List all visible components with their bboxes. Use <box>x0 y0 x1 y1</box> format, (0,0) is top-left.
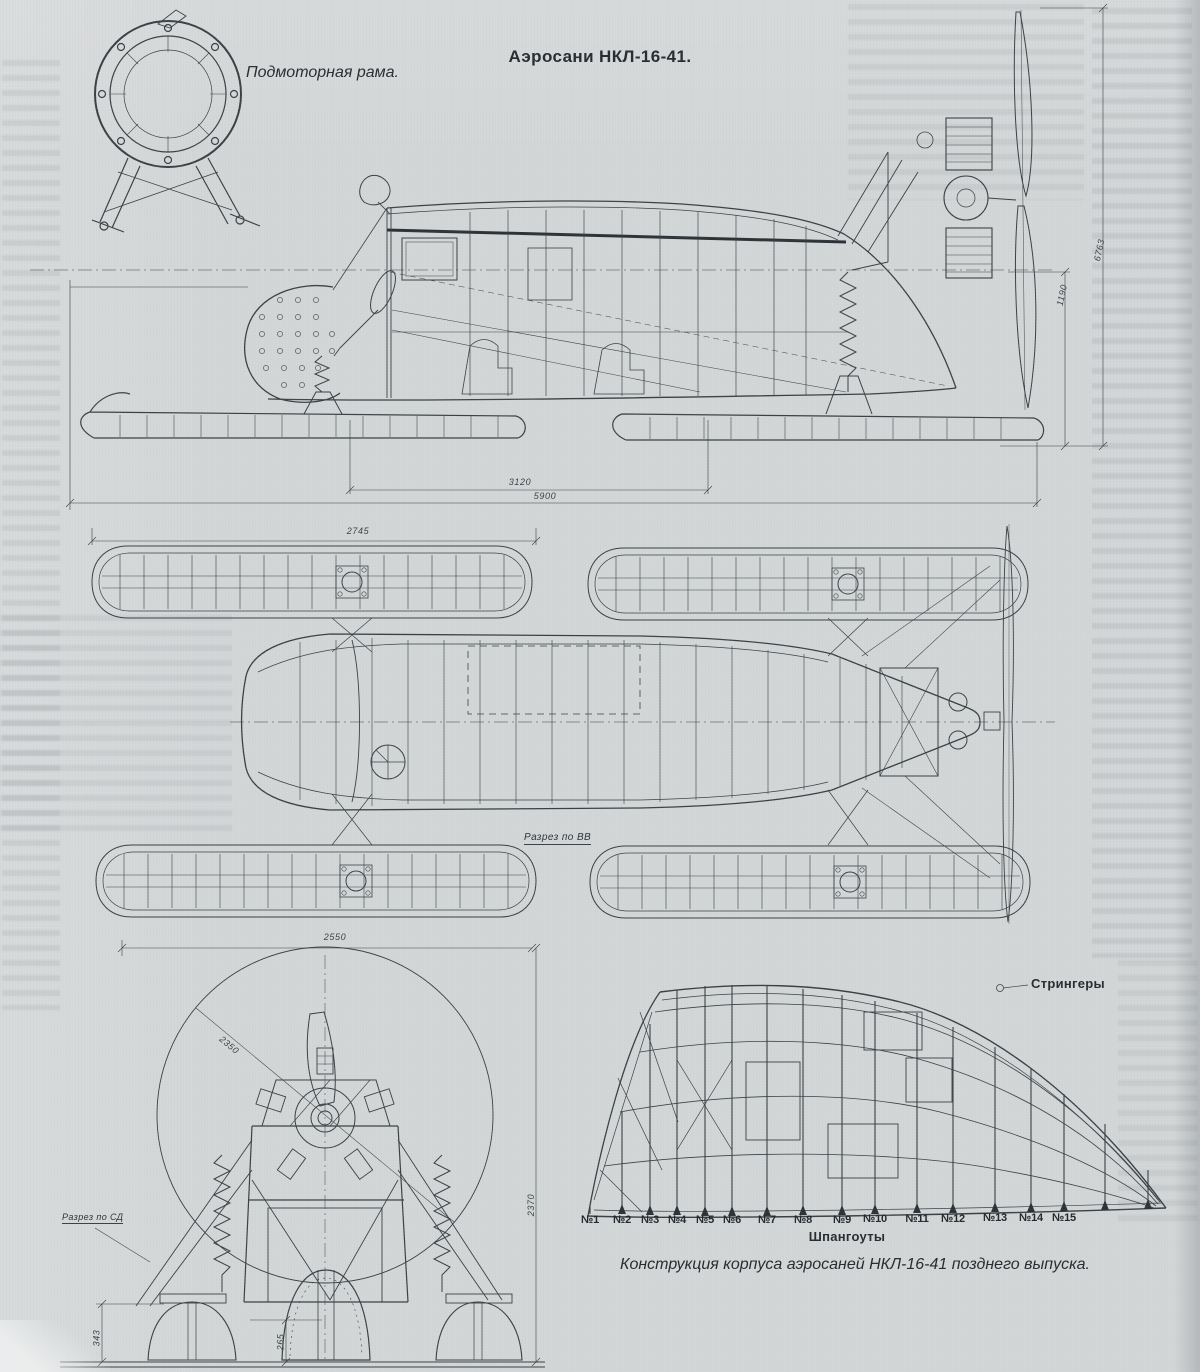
front-view-drawing <box>60 940 545 1367</box>
dim-plan-ski-length: 2745 <box>347 526 369 536</box>
page-corner-highlight <box>0 1320 110 1372</box>
frame-number: №12 <box>941 1213 965 1225</box>
frame-number: №15 <box>1052 1212 1076 1224</box>
frame-number: №2 <box>613 1214 631 1226</box>
frame-number: №4 <box>668 1214 686 1226</box>
page-edge-shadow <box>1174 0 1200 1372</box>
section-sd-label: Разрез по СД <box>62 1212 123 1224</box>
blueprint-line-art <box>0 0 1200 1372</box>
dim-front-track: 2550 <box>324 932 346 942</box>
dim-side-overall-length: 5900 <box>534 491 556 501</box>
dim-front-center-ski-height: 265 <box>275 1334 285 1351</box>
frame-number: №14 <box>1019 1212 1043 1224</box>
frame-number: №11 <box>905 1213 928 1225</box>
stringers-label: Стрингеры <box>1031 976 1105 991</box>
side-view-drawing <box>30 4 1108 510</box>
frame-number: №10 <box>863 1213 887 1225</box>
frame-number: №5 <box>696 1214 714 1226</box>
plan-view-drawing <box>88 524 1055 924</box>
dim-side-ski-base: 3120 <box>509 477 531 487</box>
section-vv-label: Разрез по ВВ <box>524 832 591 845</box>
hull-frame-drawing <box>588 985 1166 1218</box>
frame-number: №8 <box>794 1214 812 1226</box>
frame-number: №7 <box>758 1214 776 1226</box>
scanned-page: Аэросани НКЛ-16-41. Подмоторная рама. 31… <box>0 0 1200 1372</box>
page-title: Аэросани НКЛ-16-41. <box>508 47 691 67</box>
frame-number: №3 <box>641 1214 659 1226</box>
frames-axis-label: Шпангоуты <box>809 1229 886 1244</box>
frame-number: №9 <box>833 1214 851 1226</box>
frame-number: №6 <box>723 1214 741 1226</box>
frame-number: №1 <box>581 1214 599 1226</box>
dim-front-overall-height: 2370 <box>526 1194 536 1216</box>
motor-frame-label: Подмоторная рама. <box>246 64 399 82</box>
frame-number: №13 <box>983 1212 1007 1224</box>
bottom-caption: Конструкция корпуса аэросаней НКЛ-16-41 … <box>620 1256 1090 1274</box>
motor-frame-drawing <box>92 10 260 232</box>
